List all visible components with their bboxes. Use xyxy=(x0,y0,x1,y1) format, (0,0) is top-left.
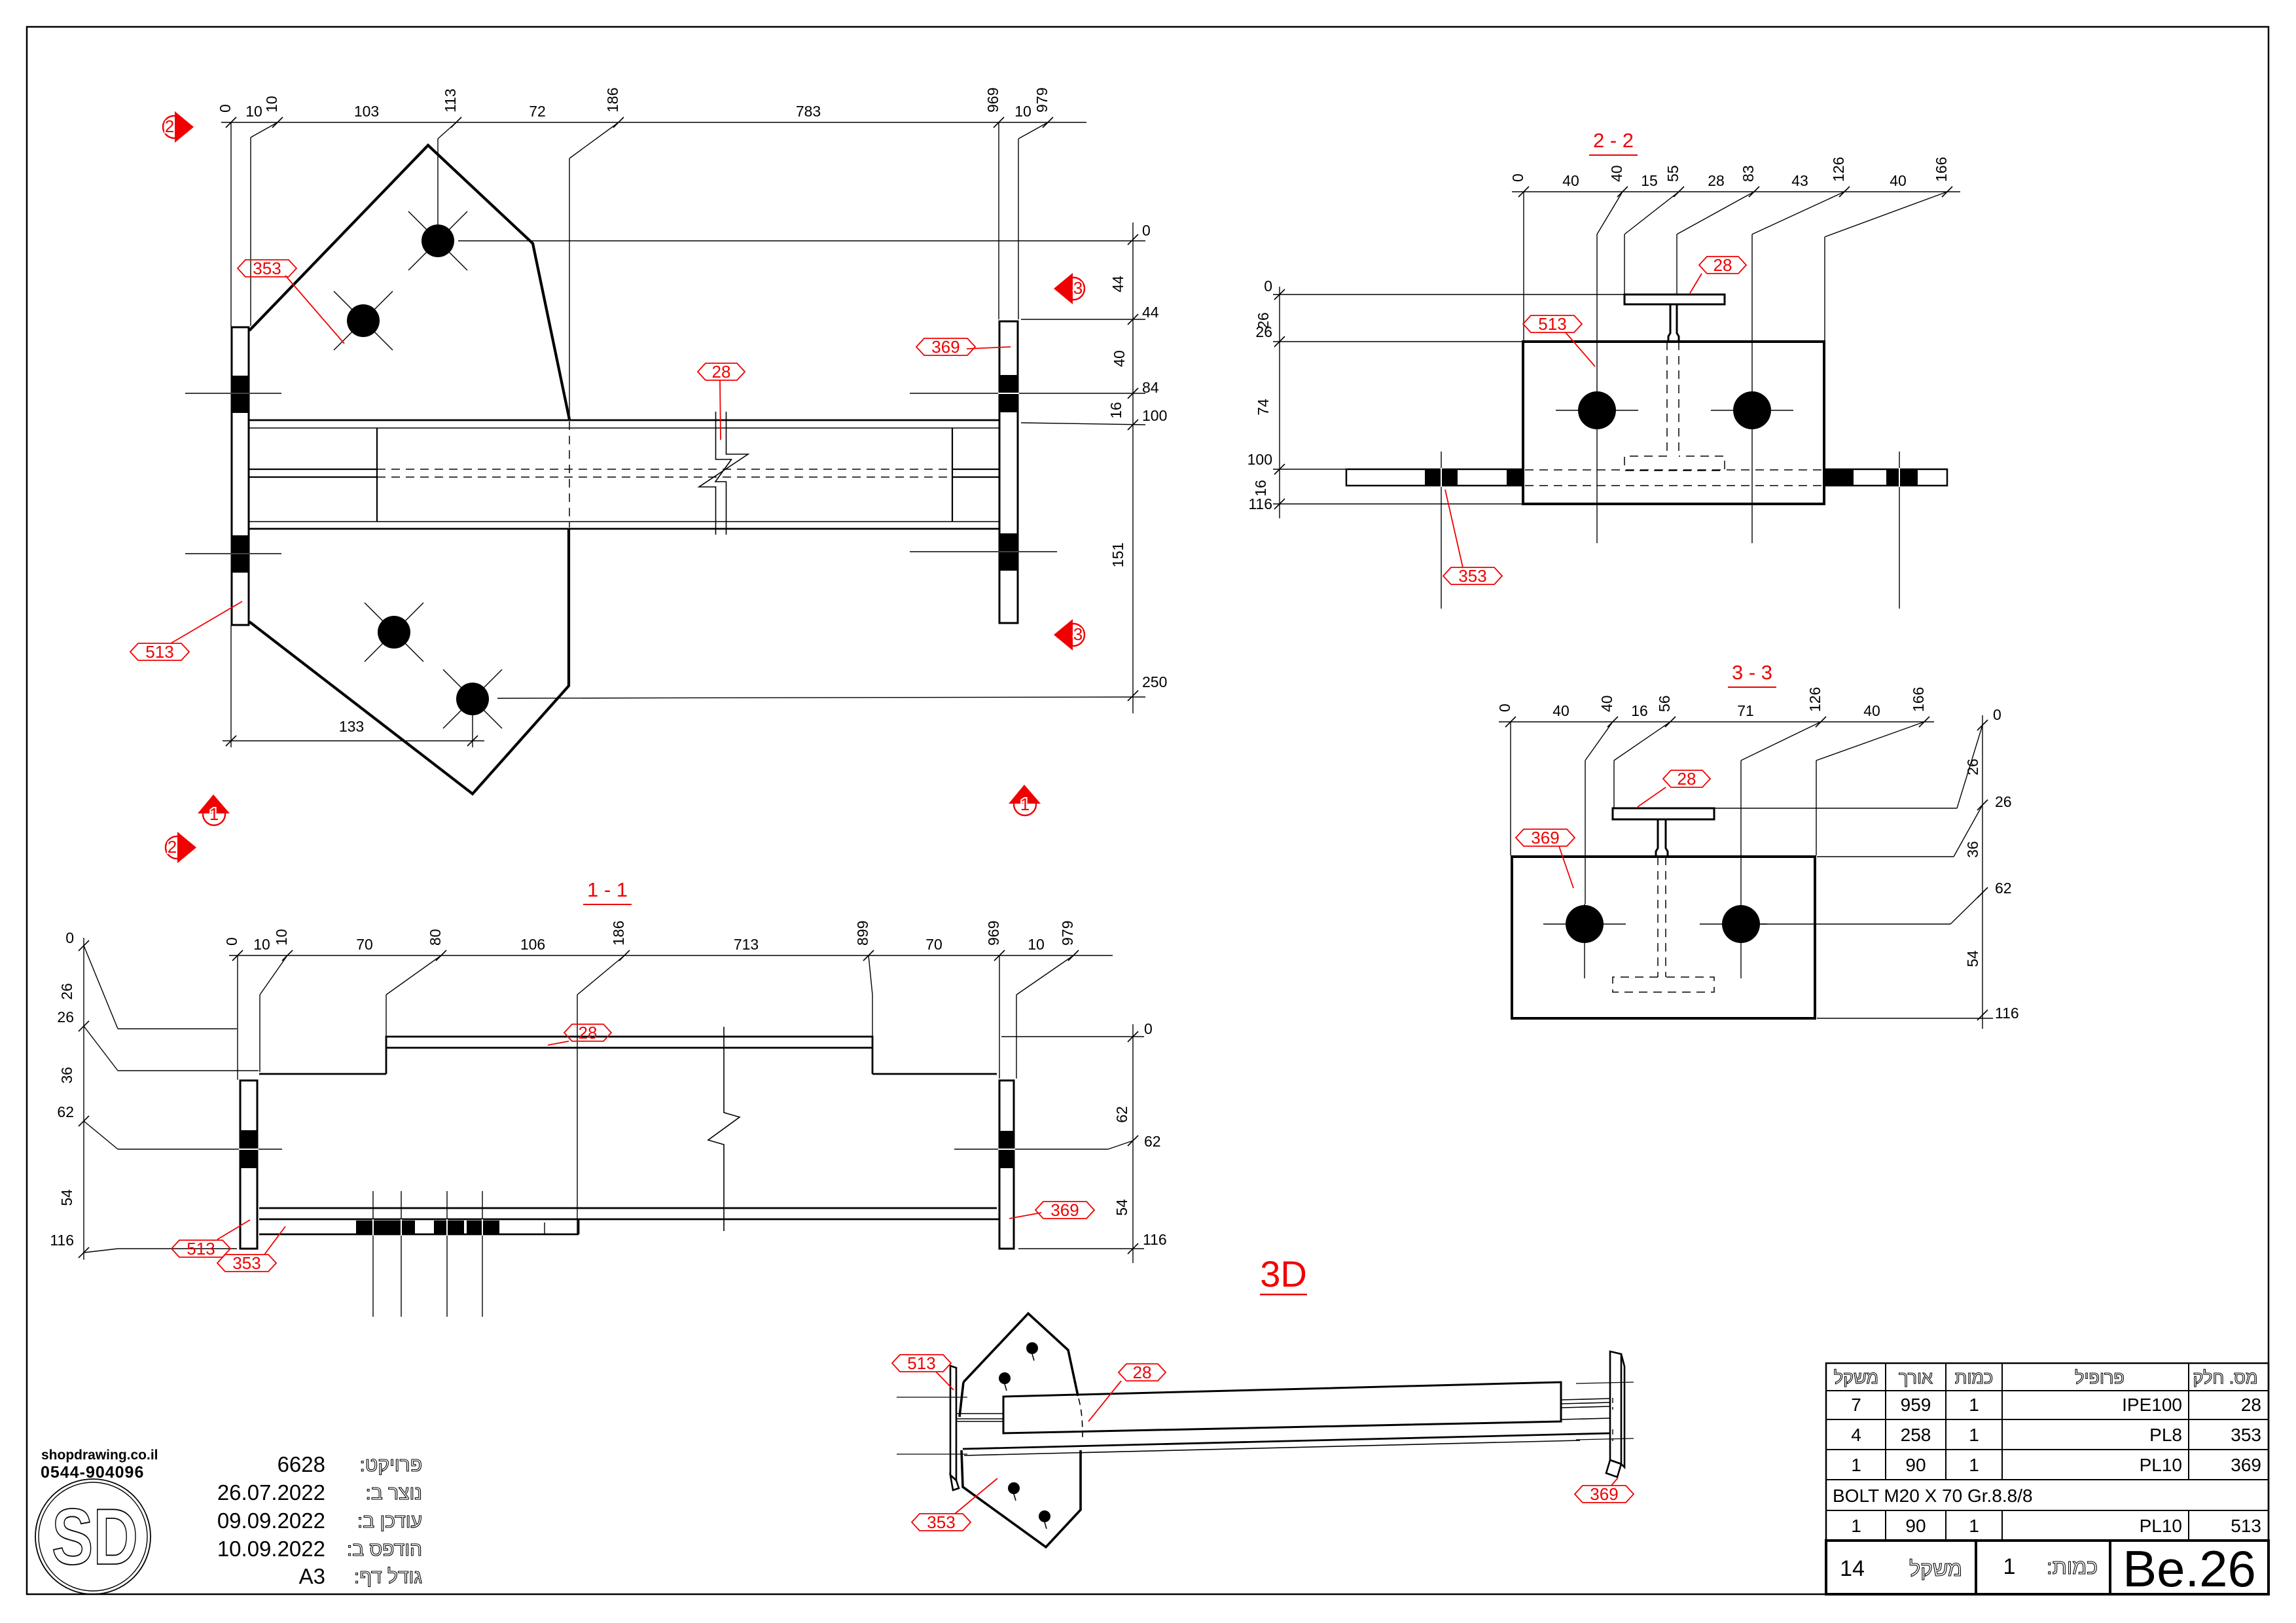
svg-text:26: 26 xyxy=(58,983,75,1000)
svg-text:PL8: PL8 xyxy=(2149,1425,2182,1445)
svg-text:116: 116 xyxy=(1248,495,1272,512)
svg-text:353: 353 xyxy=(253,259,281,278)
svg-text:1: 1 xyxy=(1969,1455,1979,1475)
svg-text:106: 106 xyxy=(520,936,545,953)
svg-text:3 - 3: 3 - 3 xyxy=(1732,661,1772,684)
svg-text:103: 103 xyxy=(354,103,379,120)
svg-text:פרויקט:‏: פרויקט:‏ xyxy=(359,1454,422,1476)
svg-text:2: 2 xyxy=(165,116,174,136)
svg-text:26: 26 xyxy=(1255,312,1272,329)
svg-text:0: 0 xyxy=(65,929,74,946)
svg-text:0: 0 xyxy=(1144,1020,1153,1037)
svg-text:1: 1 xyxy=(1969,1516,1979,1536)
svg-text:נוצר ב:‏: נוצר ב:‏ xyxy=(366,1482,422,1504)
svg-text:369: 369 xyxy=(1050,1200,1079,1220)
svg-text:1: 1 xyxy=(1969,1395,1979,1415)
svg-text:1: 1 xyxy=(1851,1516,1861,1536)
svg-text:70: 70 xyxy=(356,936,373,953)
svg-text:55: 55 xyxy=(1664,165,1681,182)
svg-text:26: 26 xyxy=(1964,758,1981,776)
svg-text:40: 40 xyxy=(1111,350,1128,367)
svg-text:979: 979 xyxy=(1059,921,1076,946)
svg-text:54: 54 xyxy=(1964,950,1981,967)
svg-text:26.07.2022: 26.07.2022 xyxy=(217,1480,325,1505)
svg-text:A3: A3 xyxy=(299,1564,325,1588)
svg-text:72: 72 xyxy=(529,103,546,120)
svg-text:28: 28 xyxy=(712,362,731,382)
svg-text:513: 513 xyxy=(907,1353,935,1373)
svg-text:54: 54 xyxy=(58,1189,75,1206)
svg-text:369: 369 xyxy=(1590,1484,1618,1504)
svg-text:100: 100 xyxy=(1142,407,1167,424)
svg-text:משקל: משקל xyxy=(1834,1368,1878,1387)
svg-text:36: 36 xyxy=(1964,841,1981,858)
svg-text:62: 62 xyxy=(1995,880,2012,897)
svg-text:353: 353 xyxy=(1458,566,1486,586)
svg-text:80: 80 xyxy=(427,929,444,946)
svg-text:PL10: PL10 xyxy=(2140,1516,2182,1536)
svg-text:0: 0 xyxy=(1264,277,1272,294)
svg-text:54: 54 xyxy=(1113,1199,1130,1216)
svg-text:116: 116 xyxy=(1143,1231,1167,1248)
svg-text:513: 513 xyxy=(2231,1516,2261,1536)
svg-text:SD: SD xyxy=(52,1492,138,1581)
svg-text:PL10: PL10 xyxy=(2140,1455,2182,1475)
svg-text:14: 14 xyxy=(1840,1556,1865,1581)
svg-text:40: 40 xyxy=(1863,702,1880,719)
svg-text:258: 258 xyxy=(1901,1425,1931,1445)
svg-text:0: 0 xyxy=(1496,704,1513,712)
svg-text:0: 0 xyxy=(217,104,234,113)
svg-text:369: 369 xyxy=(2231,1455,2261,1475)
svg-text:עודכן ב:‏: עודכן ב:‏ xyxy=(357,1510,422,1532)
svg-text:15: 15 xyxy=(1641,172,1658,189)
svg-text:56: 56 xyxy=(1656,695,1673,712)
svg-text:1: 1 xyxy=(2003,1554,2016,1579)
svg-text:1: 1 xyxy=(1020,794,1030,814)
svg-text:126: 126 xyxy=(1806,687,1823,712)
svg-text:16: 16 xyxy=(1252,480,1269,497)
svg-text:2 - 2: 2 - 2 xyxy=(1593,129,1634,152)
svg-text:969: 969 xyxy=(984,88,1001,113)
svg-text:10: 10 xyxy=(245,103,262,120)
svg-text:969: 969 xyxy=(985,921,1002,946)
svg-text:40: 40 xyxy=(1562,172,1579,189)
svg-text:10: 10 xyxy=(1028,936,1045,953)
svg-text:151: 151 xyxy=(1109,543,1126,567)
svg-text:84: 84 xyxy=(1142,379,1159,396)
svg-text:4: 4 xyxy=(1851,1425,1861,1445)
svg-text:369: 369 xyxy=(1531,828,1559,847)
svg-text:28: 28 xyxy=(1713,255,1732,275)
svg-text:133: 133 xyxy=(339,718,364,735)
svg-text:62: 62 xyxy=(1144,1133,1161,1150)
svg-text:44: 44 xyxy=(1109,276,1126,293)
svg-text:BOLT M20 X 70 Gr.8.8/8: BOLT M20 X 70 Gr.8.8/8 xyxy=(1833,1486,2033,1506)
svg-text:הודפס ב:‏: הודפס ב:‏ xyxy=(347,1539,422,1560)
svg-text:09.09.2022: 09.09.2022 xyxy=(217,1508,325,1533)
svg-text:כמות:‏: כמות:‏ xyxy=(2047,1555,2098,1578)
svg-text:16: 16 xyxy=(1107,402,1124,419)
svg-text:Be.26: Be.26 xyxy=(2123,1540,2256,1597)
svg-text:40: 40 xyxy=(1890,172,1907,189)
svg-text:70: 70 xyxy=(925,936,942,953)
svg-text:62: 62 xyxy=(1113,1106,1130,1123)
svg-text:1: 1 xyxy=(1969,1425,1979,1445)
svg-text:6628: 6628 xyxy=(278,1452,325,1476)
svg-text:0: 0 xyxy=(1993,706,2001,723)
svg-text:פרופיל: פרופיל xyxy=(2075,1368,2125,1387)
svg-text:1: 1 xyxy=(209,804,219,824)
svg-text:100: 100 xyxy=(1247,451,1272,468)
svg-text:43: 43 xyxy=(1791,172,1808,189)
svg-text:28: 28 xyxy=(1677,769,1696,789)
svg-text:10: 10 xyxy=(263,96,280,113)
svg-text:10: 10 xyxy=(1014,103,1031,120)
svg-text:0: 0 xyxy=(1142,222,1151,239)
svg-text:71: 71 xyxy=(1737,702,1754,719)
svg-text:0: 0 xyxy=(223,937,240,946)
svg-text:713: 713 xyxy=(734,936,759,953)
svg-text:40: 40 xyxy=(1598,695,1615,712)
svg-text:353: 353 xyxy=(232,1253,260,1273)
svg-text:אורך: אורך xyxy=(1899,1368,1933,1387)
svg-text:28: 28 xyxy=(2241,1395,2261,1415)
svg-text:186: 186 xyxy=(604,88,621,113)
svg-text:28: 28 xyxy=(1133,1363,1152,1382)
svg-text:26: 26 xyxy=(57,1008,74,1026)
svg-text:28: 28 xyxy=(1708,172,1725,189)
svg-text:369: 369 xyxy=(931,337,960,357)
svg-text:44: 44 xyxy=(1142,304,1159,321)
svg-text:1 - 1: 1 - 1 xyxy=(587,878,628,901)
svg-text:353: 353 xyxy=(2231,1425,2261,1445)
svg-text:979: 979 xyxy=(1033,88,1050,113)
svg-text:40: 40 xyxy=(1552,702,1570,719)
svg-text:shopdrawing.co.il: shopdrawing.co.il xyxy=(41,1448,158,1463)
svg-text:10.09.2022: 10.09.2022 xyxy=(217,1537,325,1561)
svg-text:1: 1 xyxy=(1851,1455,1861,1475)
svg-text:10: 10 xyxy=(273,929,290,946)
svg-text:113: 113 xyxy=(442,88,459,113)
svg-text:מס. חלק: מס. חלק xyxy=(2193,1368,2258,1387)
svg-text:0: 0 xyxy=(1509,173,1526,182)
svg-text:90: 90 xyxy=(1905,1516,1926,1536)
svg-text:166: 166 xyxy=(1910,687,1927,712)
svg-text:7: 7 xyxy=(1851,1395,1861,1415)
svg-text:250: 250 xyxy=(1142,673,1167,690)
svg-text:2: 2 xyxy=(168,837,177,857)
svg-text:116: 116 xyxy=(50,1232,74,1249)
svg-text:166: 166 xyxy=(1933,157,1950,182)
svg-text:90: 90 xyxy=(1905,1455,1926,1475)
svg-text:IPE100: IPE100 xyxy=(2122,1395,2182,1415)
svg-text:186: 186 xyxy=(610,921,627,946)
svg-text:126: 126 xyxy=(1830,157,1847,182)
svg-text:16: 16 xyxy=(1631,702,1648,719)
svg-text:513: 513 xyxy=(187,1239,215,1258)
svg-text:353: 353 xyxy=(927,1512,955,1532)
svg-text:גודל דף:‏: גודל דף:‏ xyxy=(354,1566,422,1588)
svg-text:74: 74 xyxy=(1255,399,1272,416)
svg-text:כמות: כמות xyxy=(1955,1368,1993,1387)
svg-text:28: 28 xyxy=(579,1023,598,1043)
svg-text:116: 116 xyxy=(1995,1005,2019,1022)
svg-text:3: 3 xyxy=(1073,624,1083,644)
svg-text:783: 783 xyxy=(796,103,821,120)
svg-text:40: 40 xyxy=(1608,165,1625,182)
svg-text:62: 62 xyxy=(57,1103,74,1120)
svg-text:3D: 3D xyxy=(1260,1253,1307,1294)
svg-text:513: 513 xyxy=(145,642,173,662)
svg-text:36: 36 xyxy=(58,1067,75,1084)
svg-text:10: 10 xyxy=(253,936,270,953)
svg-text:899: 899 xyxy=(854,921,871,946)
svg-text:959: 959 xyxy=(1901,1395,1931,1415)
svg-text:26: 26 xyxy=(1995,793,2012,810)
svg-text:83: 83 xyxy=(1740,165,1757,182)
svg-text:513: 513 xyxy=(1538,314,1566,334)
svg-text:3: 3 xyxy=(1073,278,1083,298)
svg-text:משקל: משקל xyxy=(1909,1557,1962,1580)
